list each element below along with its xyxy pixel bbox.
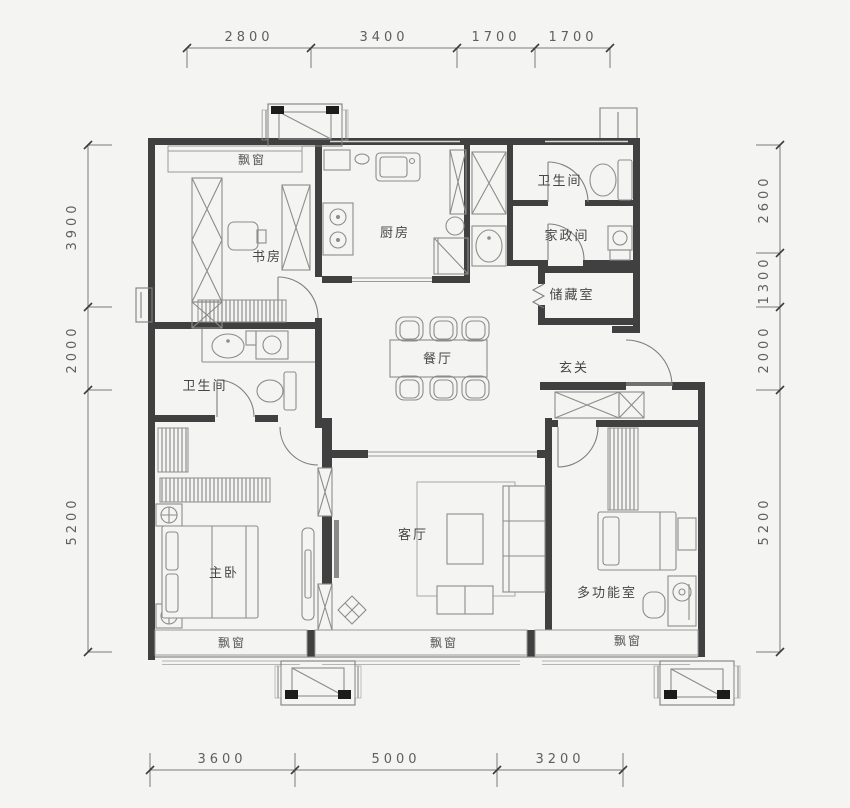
floor-plan-canvas: 2800 3400 1700 1700 3600 5000 3200 3900 … <box>0 0 850 808</box>
room-label-bathroom-master: 卫生间 <box>182 379 227 394</box>
bay-window-living-box <box>315 630 527 655</box>
washing-machine <box>246 331 288 359</box>
bath-top-shower-area <box>472 152 506 266</box>
multi-wardrobe <box>608 428 638 510</box>
dim-left-2: 2000 <box>65 324 80 373</box>
decor-diamond <box>338 596 366 624</box>
dim-right-2: 1300 <box>757 255 772 304</box>
bedroom-cabinet-corner <box>158 428 188 472</box>
room-master-bedroom <box>156 428 314 628</box>
kitchen-sink <box>376 153 420 181</box>
bathtub-basin <box>472 226 506 266</box>
dim-bottom-1: 3600 <box>197 752 246 767</box>
sofa <box>503 486 545 592</box>
room-label-multi-function: 多功能室 <box>577 585 637 601</box>
housekeeping-sink <box>608 226 632 260</box>
dimension-right: 2600 1300 2000 5200 <box>756 141 784 656</box>
dim-top-1: 2800 <box>224 30 273 45</box>
toilet-master <box>257 372 296 410</box>
dim-bottom-3: 3200 <box>535 752 584 767</box>
dimension-bottom: 3600 5000 3200 <box>146 752 627 787</box>
room-label-foyer: 玄关 <box>559 361 589 376</box>
nightstand-top <box>156 504 182 526</box>
multi-desk <box>668 576 696 626</box>
storage-folding-door <box>533 284 544 308</box>
ottoman-seats <box>437 586 493 614</box>
dimension-top: 2800 3400 1700 1700 <box>183 30 614 68</box>
bay-label-study: 飘窗 <box>238 153 266 167</box>
room-label-dining: 餐厅 <box>423 351 453 367</box>
tv-screen <box>334 520 339 578</box>
kitchen-counter-top-left <box>324 150 369 170</box>
room-label-bathroom-top: 卫生间 <box>537 174 582 189</box>
room-bathroom-top <box>590 160 632 200</box>
ac-platform-bottom-left <box>275 661 361 705</box>
bay-label-multi: 飘窗 <box>614 634 642 648</box>
kitchen-stove <box>323 203 353 255</box>
ac-platform-bottom-right <box>654 661 740 705</box>
room-label-kitchen: 厨房 <box>380 225 410 241</box>
room-living <box>417 482 545 614</box>
kitchen-fridge <box>434 238 468 274</box>
shoe-cabinet <box>555 392 644 418</box>
study-cabinet-hatched <box>198 300 286 322</box>
room-foyer <box>555 392 644 418</box>
room-bathroom-master <box>202 329 315 410</box>
room-housekeeping <box>608 226 632 260</box>
bedroom-wardrobe <box>160 478 270 502</box>
bedroom-tv-console <box>302 528 314 620</box>
dim-right-4: 5200 <box>757 496 772 545</box>
kitchen-basin-round <box>446 217 464 235</box>
study-wardrobe-right <box>282 185 310 270</box>
dim-left-1: 3900 <box>65 201 80 250</box>
kitchen-sliding-door <box>352 278 432 282</box>
floor-plan-drawing: 2800 3400 1700 1700 3600 5000 3200 3900 … <box>0 0 850 808</box>
kitchen-flue <box>450 150 466 214</box>
single-bed <box>598 512 676 570</box>
dimension-left: 3900 2000 5200 <box>65 141 112 656</box>
room-label-living: 客厅 <box>398 527 428 543</box>
master-bedroom-door <box>280 427 318 465</box>
multi-function-door <box>558 427 598 467</box>
dining-chairs-bottom <box>396 376 489 400</box>
room-label-housekeeping: 家政间 <box>544 228 589 244</box>
multi-nightstand <box>678 518 696 550</box>
dim-left-3: 5200 <box>65 496 80 545</box>
room-kitchen <box>323 150 468 274</box>
bay-window-study-box <box>168 146 302 172</box>
toilet-top <box>590 160 632 200</box>
shower-stall <box>472 152 506 214</box>
bay-label-living: 飘窗 <box>430 636 458 650</box>
study-desk-chair <box>228 222 266 250</box>
coffee-table <box>447 514 483 564</box>
room-label-storage: 储藏室 <box>549 287 594 303</box>
dim-top-3: 1700 <box>471 30 520 45</box>
dim-top-4: 1700 <box>548 30 597 45</box>
room-label-master-bedroom: 主卧 <box>209 566 239 581</box>
room-label-study: 书房 <box>252 249 282 265</box>
entry-door <box>626 340 672 386</box>
multi-chair <box>643 592 665 618</box>
basin-master <box>212 334 244 358</box>
dim-top-2: 3400 <box>359 30 408 45</box>
dim-right-1: 2600 <box>757 174 772 223</box>
bay-label-master: 飘窗 <box>218 636 246 650</box>
room-study <box>168 146 310 328</box>
dim-right-3: 2000 <box>757 324 772 373</box>
dining-chairs-top <box>396 317 489 341</box>
dim-bottom-2: 5000 <box>371 752 420 767</box>
